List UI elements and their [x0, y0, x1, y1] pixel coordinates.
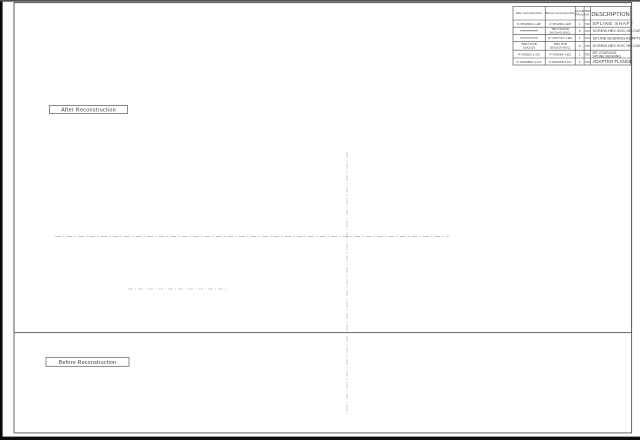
svg-text:SCREW,HEX.SOC.HD.CAP: SCREW,HEX.SOC.HD.CAP	[593, 28, 640, 33]
svg-text:724: 724	[585, 36, 590, 40]
svg-text:8: 8	[579, 44, 581, 48]
svg-text:P-V54295A-1-EP: P-V54295A-1-EP	[517, 22, 541, 26]
svg-text:1: 1	[579, 60, 581, 64]
svg-text:16X2x25: 16X2x25	[523, 45, 535, 49]
svg-text:After Reconstruction: After Reconstruction	[61, 108, 116, 114]
svg-text:16X2x40-30/CL: 16X2x40-30/CL	[549, 31, 571, 35]
svg-text:PACK: PACK	[575, 13, 584, 17]
svg-text:P-V53773A-1-EZ: P-V53773A-1-EZ	[548, 36, 572, 40]
svg-text:723: 723	[585, 29, 590, 33]
svg-text:After reconstruction: After reconstruction	[516, 11, 543, 15]
svg-text:P-V54284-1-EZ: P-V54284-1-EZ	[549, 52, 571, 56]
svg-text:782: 782	[585, 52, 590, 56]
svg-text:P-V55302-1-DX: P-V55302-1-DX	[518, 52, 540, 56]
svg-text:P-W54658A-1-FG: P-W54658A-1-FG	[517, 60, 542, 64]
svg-text:16X2x20-30/CL: 16X2x20-30/CL	[549, 45, 571, 49]
svg-text:8: 8	[579, 29, 581, 33]
svg-text:SPLINE BUSHING ADAPTER: SPLINE BUSHING ADAPTER	[593, 35, 640, 40]
svg-text:SPLINE BUSHING: SPLINE BUSHING	[593, 54, 622, 58]
svg-text:P-W5461B-1-FG: P-W5461B-1-FG	[549, 60, 573, 64]
svg-text:SCREW,HEX.SOC.HD.CAP: SCREW,HEX.SOC.HD.CAP	[593, 43, 640, 48]
svg-text:SPLINE SHAFT: SPLINE SHAFT	[593, 21, 634, 26]
svg-text:722: 722	[585, 22, 590, 26]
svg-text:1: 1	[579, 22, 581, 26]
svg-text:P-V54295-1-EP: P-V54295-1-EP	[549, 22, 571, 26]
svg-text:Before reconstruction: Before reconstruction	[545, 11, 575, 15]
svg-text:NO.: NO.	[585, 13, 591, 17]
svg-text:DESCRIPTION: DESCRIPTION	[591, 12, 629, 18]
svg-text:725: 725	[585, 44, 590, 48]
svg-text:1: 1	[579, 36, 581, 40]
svg-text:1: 1	[579, 52, 581, 56]
svg-text:Before Reconstruction: Before Reconstruction	[59, 360, 117, 366]
svg-text:ADAPTER FLANGE: ADAPTER FLANGE	[593, 59, 633, 64]
svg-text:728: 728	[585, 60, 590, 64]
